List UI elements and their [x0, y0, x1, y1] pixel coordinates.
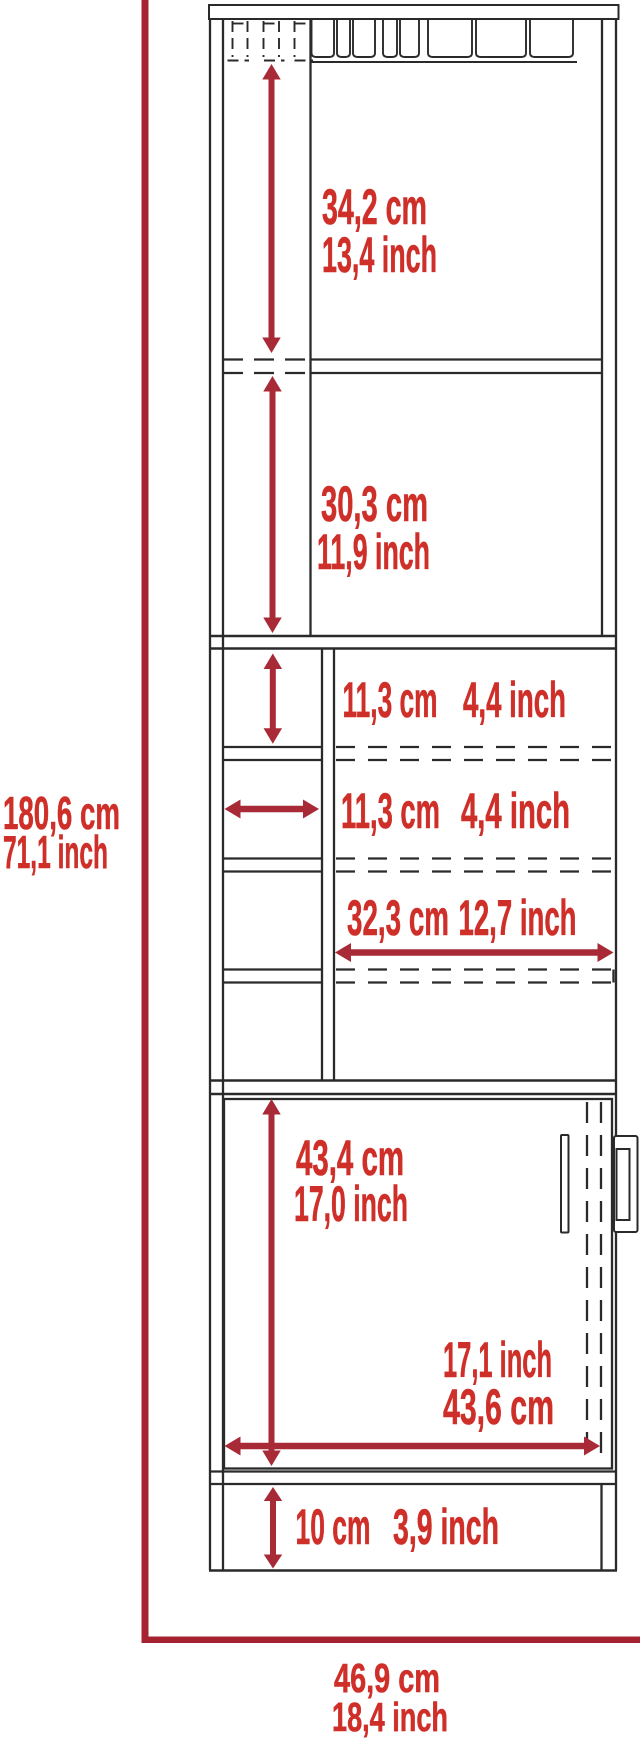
- svg-text:4,4 inch: 4,4 inch: [461, 783, 570, 839]
- svg-text:32,3 cm: 32,3 cm: [347, 890, 449, 946]
- svg-text:17,0 inch: 17,0 inch: [294, 1176, 408, 1232]
- svg-text:11,3 cm: 11,3 cm: [343, 672, 438, 728]
- svg-text:12,7 inch: 12,7 inch: [459, 890, 577, 946]
- svg-text:18,4 inch: 18,4 inch: [332, 1694, 448, 1740]
- svg-text:71,1 inch: 71,1 inch: [3, 826, 108, 878]
- svg-text:10 cm: 10 cm: [296, 1499, 371, 1555]
- svg-text:11,3 cm: 11,3 cm: [341, 783, 440, 839]
- svg-text:13,4 inch: 13,4 inch: [322, 227, 437, 283]
- svg-text:4,4 inch: 4,4 inch: [463, 672, 566, 728]
- svg-text:3,9 inch: 3,9 inch: [393, 1499, 499, 1555]
- svg-text:11,9 inch: 11,9 inch: [317, 524, 430, 580]
- svg-text:43,6 cm: 43,6 cm: [443, 1379, 554, 1435]
